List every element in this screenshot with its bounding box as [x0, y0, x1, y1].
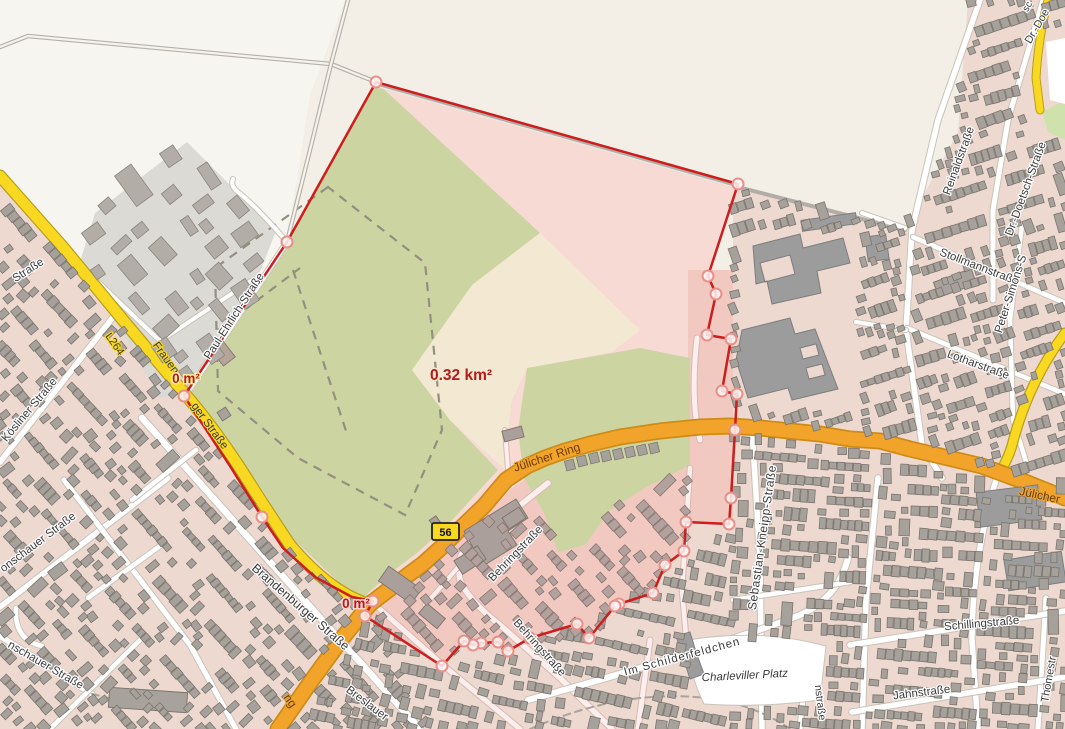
- svg-text:0 m²: 0 m²: [342, 596, 370, 611]
- svg-text:0 m²: 0 m²: [172, 371, 200, 386]
- svg-text:0.32 km²: 0.32 km²: [430, 367, 492, 384]
- svg-text:56: 56: [439, 527, 451, 539]
